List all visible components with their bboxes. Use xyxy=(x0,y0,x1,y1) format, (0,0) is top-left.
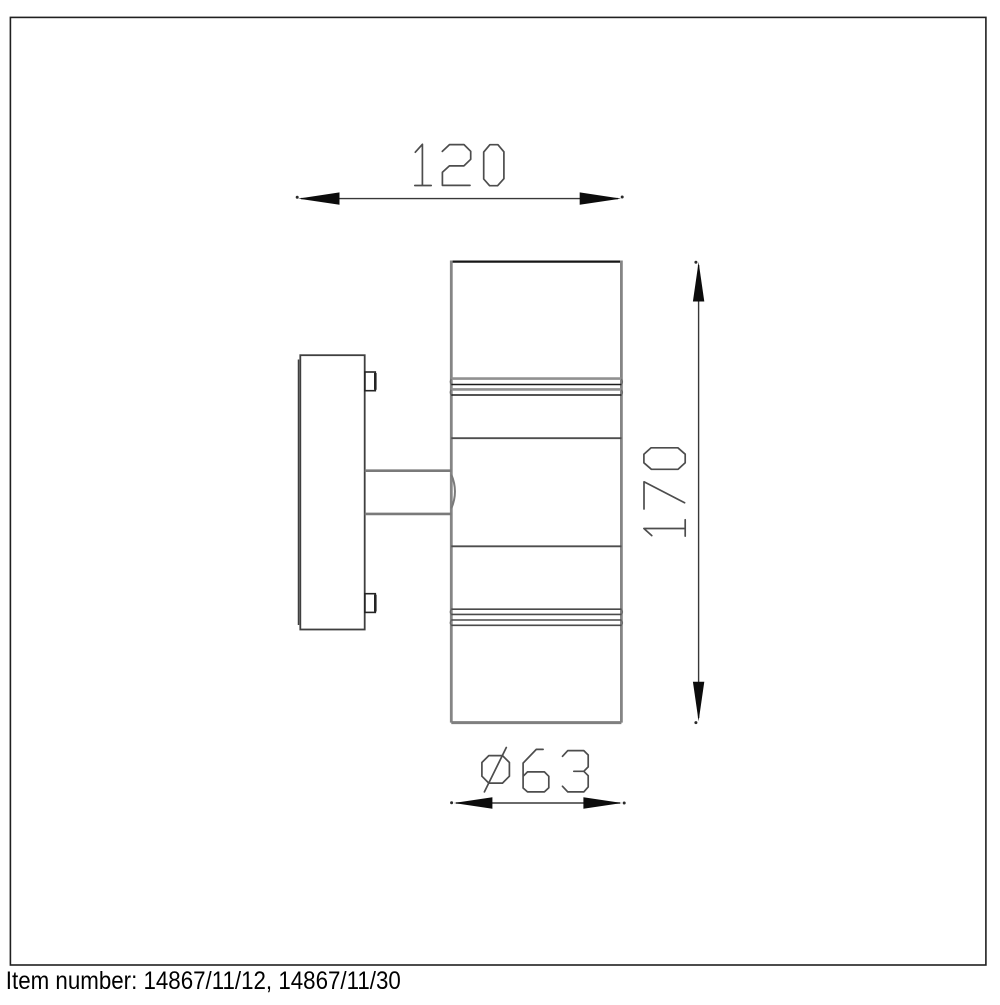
svg-text:Item number: 14867/11/12, 1486: Item number: 14867/11/12, 14867/11/30 xyxy=(6,968,401,995)
